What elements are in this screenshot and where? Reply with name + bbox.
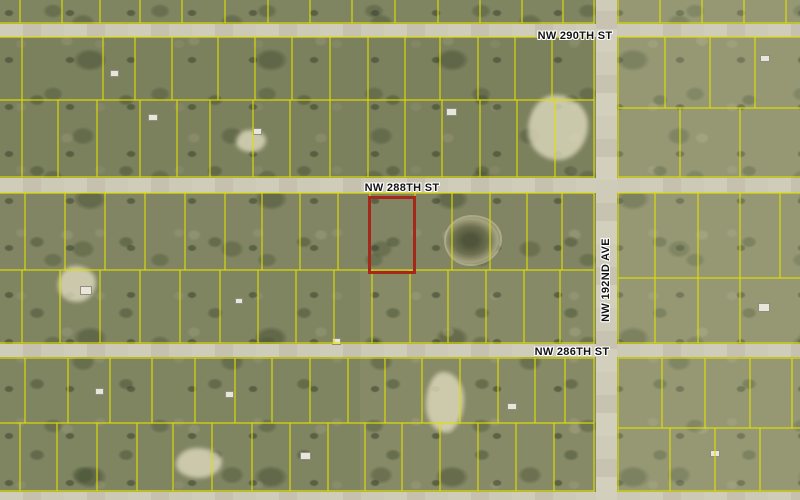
street-label-nw-290th-st: NW 290TH ST	[538, 30, 613, 42]
highlighted-parcel[interactable]	[368, 196, 416, 274]
street-label-nw-286th-st: NW 286TH ST	[535, 346, 610, 358]
street-label-nw-288th-st: NW 288TH ST	[365, 182, 440, 194]
street-label-nw-192nd-ave: NW 192ND AVE	[600, 238, 612, 322]
map-canvas[interactable]: NW 290TH ST NW 288TH ST NW 286TH ST NW 1…	[0, 0, 800, 500]
